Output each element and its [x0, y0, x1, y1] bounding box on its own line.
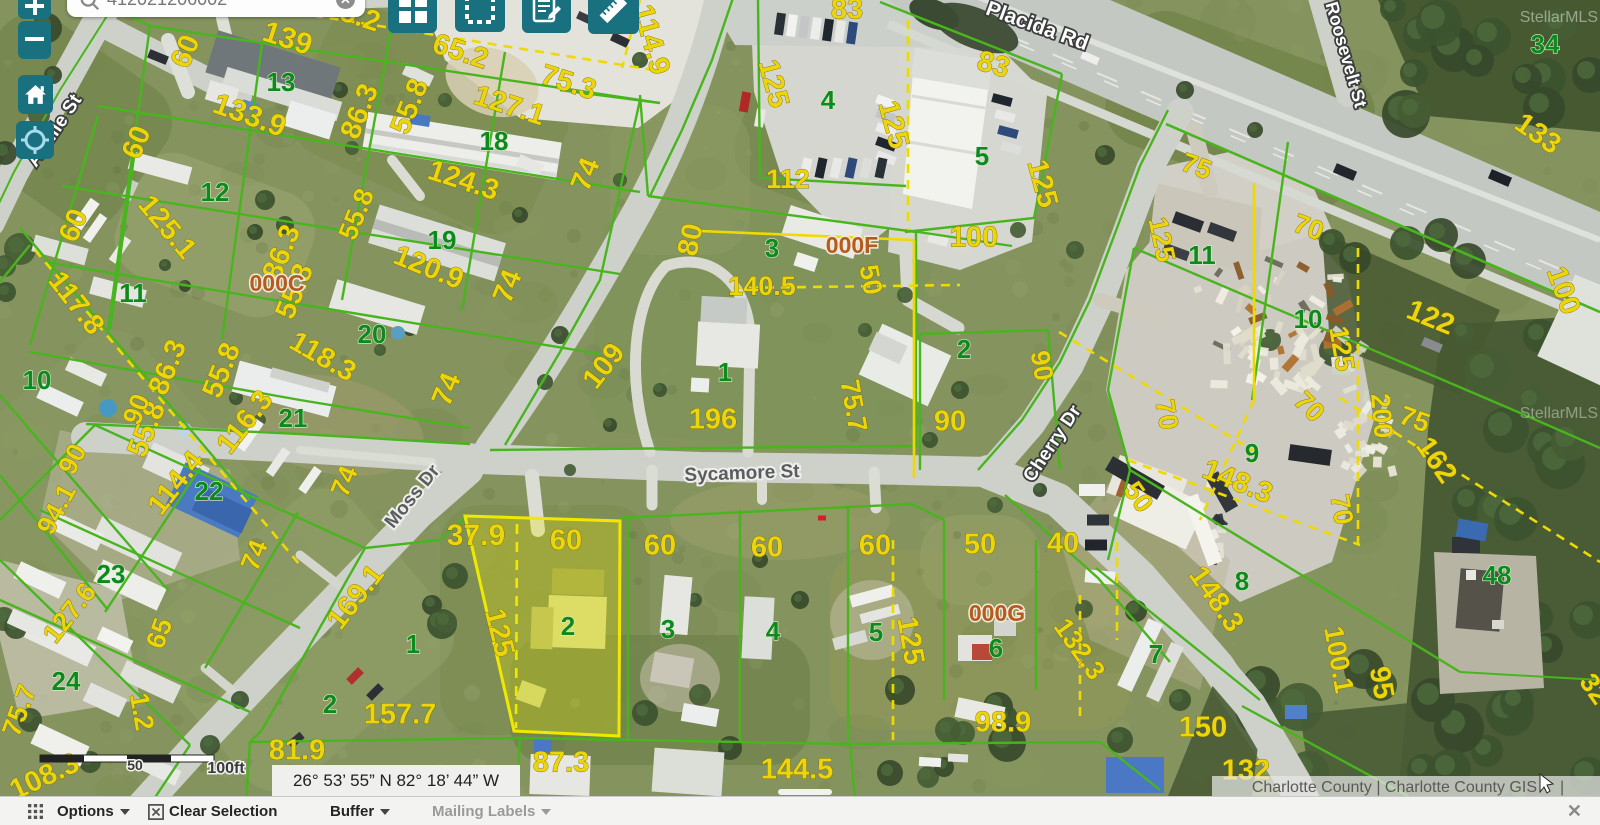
svg-text:6: 6 [989, 633, 1003, 663]
svg-text:24: 24 [52, 666, 81, 696]
svg-text:11: 11 [1188, 240, 1216, 270]
svg-text:20: 20 [358, 319, 387, 349]
svg-text:37.9: 37.9 [447, 519, 505, 552]
svg-text:10: 10 [23, 365, 52, 395]
svg-text:112: 112 [766, 164, 810, 194]
svg-text:50: 50 [964, 529, 996, 561]
svg-text:18: 18 [480, 126, 509, 156]
svg-text:23: 23 [97, 559, 126, 589]
svg-text:000F: 000F [826, 232, 878, 258]
svg-text:100: 100 [950, 222, 998, 254]
svg-text:11: 11 [119, 278, 147, 308]
svg-text:50: 50 [127, 757, 143, 773]
svg-text:98.9: 98.9 [975, 707, 1031, 739]
svg-text:95: 95 [1363, 664, 1400, 701]
svg-text:157.7: 157.7 [364, 699, 437, 731]
svg-text:200: 200 [1365, 392, 1399, 440]
svg-text:1: 1 [406, 629, 420, 659]
svg-text:3: 3 [661, 614, 675, 644]
svg-text:StellarMLS: StellarMLS [1520, 405, 1598, 422]
svg-text:90: 90 [934, 406, 966, 438]
svg-text:Sycamore St: Sycamore St [684, 461, 800, 486]
svg-text:5: 5 [869, 617, 883, 647]
svg-text:1: 1 [718, 357, 732, 387]
svg-text:144.5: 144.5 [761, 754, 834, 786]
svg-text:40: 40 [1047, 528, 1079, 560]
svg-text:2: 2 [561, 611, 575, 641]
svg-text:1.2: 1.2 [124, 691, 160, 733]
svg-text:3: 3 [765, 233, 779, 263]
svg-text:7: 7 [1149, 639, 1163, 669]
svg-text:60: 60 [751, 532, 783, 564]
svg-text:4: 4 [766, 616, 781, 646]
svg-text:9: 9 [1245, 438, 1259, 468]
svg-text:50: 50 [853, 262, 888, 297]
svg-text:19: 19 [428, 225, 457, 255]
svg-text:60: 60 [550, 525, 582, 557]
svg-text:60: 60 [644, 530, 676, 562]
svg-text:87.3: 87.3 [533, 747, 589, 779]
svg-text:90: 90 [1024, 348, 1059, 383]
svg-text:StellarMLS: StellarMLS [1520, 9, 1598, 26]
svg-text:2: 2 [323, 689, 337, 719]
svg-text:100ft: 100ft [207, 760, 245, 777]
svg-text:22: 22 [195, 476, 224, 506]
svg-text:13: 13 [267, 67, 296, 97]
svg-text:000C: 000C [250, 270, 305, 296]
svg-text:21: 21 [279, 403, 308, 433]
svg-text:150: 150 [1179, 712, 1227, 744]
svg-text:4: 4 [821, 85, 836, 115]
svg-text:2: 2 [957, 334, 971, 364]
svg-text:83: 83 [831, 0, 863, 26]
svg-text:196: 196 [689, 404, 737, 436]
svg-text:70: 70 [1149, 397, 1184, 432]
svg-text:81.9: 81.9 [269, 735, 325, 767]
svg-text:Charlotte County | Charlotte C: Charlotte County | Charlotte County GIS [1252, 779, 1537, 796]
svg-text:140.5: 140.5 [728, 271, 796, 301]
svg-text:48: 48 [1483, 560, 1512, 590]
svg-text:8: 8 [1235, 566, 1249, 596]
svg-text:000G: 000G [969, 600, 1025, 626]
svg-text:10: 10 [1294, 304, 1323, 334]
svg-text:12: 12 [201, 177, 230, 207]
svg-text:70: 70 [1324, 492, 1359, 527]
svg-text:34: 34 [1531, 29, 1560, 59]
svg-text:80: 80 [672, 221, 710, 259]
svg-text:60: 60 [859, 530, 891, 562]
svg-text:5: 5 [975, 141, 989, 171]
svg-text:|: | [1560, 779, 1564, 796]
